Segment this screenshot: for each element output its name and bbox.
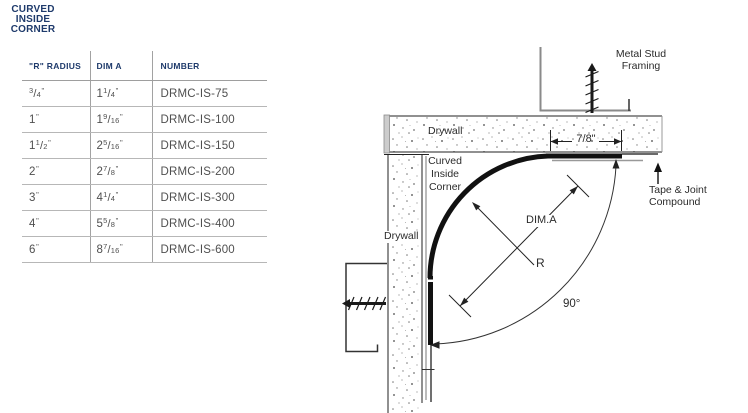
screw-vertical-icon	[586, 63, 599, 113]
screw-horizontal-icon	[342, 297, 386, 310]
drywall-side-label: Drywall	[382, 231, 420, 243]
metal-stud-framing-label: Metal Stud Framing	[602, 49, 680, 72]
curved-inside-corner-label: Curved Inside Corner	[422, 155, 468, 193]
dimension-7-8-label: 7/8"	[573, 134, 599, 146]
drywall-panel-top	[384, 115, 662, 153]
dim-a-label: DIM.A	[524, 215, 559, 227]
tape-joint-compound-label: Tape & Joint Compound	[649, 185, 707, 208]
spec-sheet-page: CURVED INSIDE CORNER "R" RADIUS DIM A NU…	[0, 0, 748, 413]
dimension-dim-a	[449, 175, 589, 317]
radius-arrow	[472, 202, 534, 265]
tape-joint-arrow	[654, 163, 662, 185]
angle-90-label: 90°	[563, 299, 580, 311]
drywall-top-label: Drywall	[428, 126, 462, 138]
radius-label: R	[536, 258, 545, 270]
